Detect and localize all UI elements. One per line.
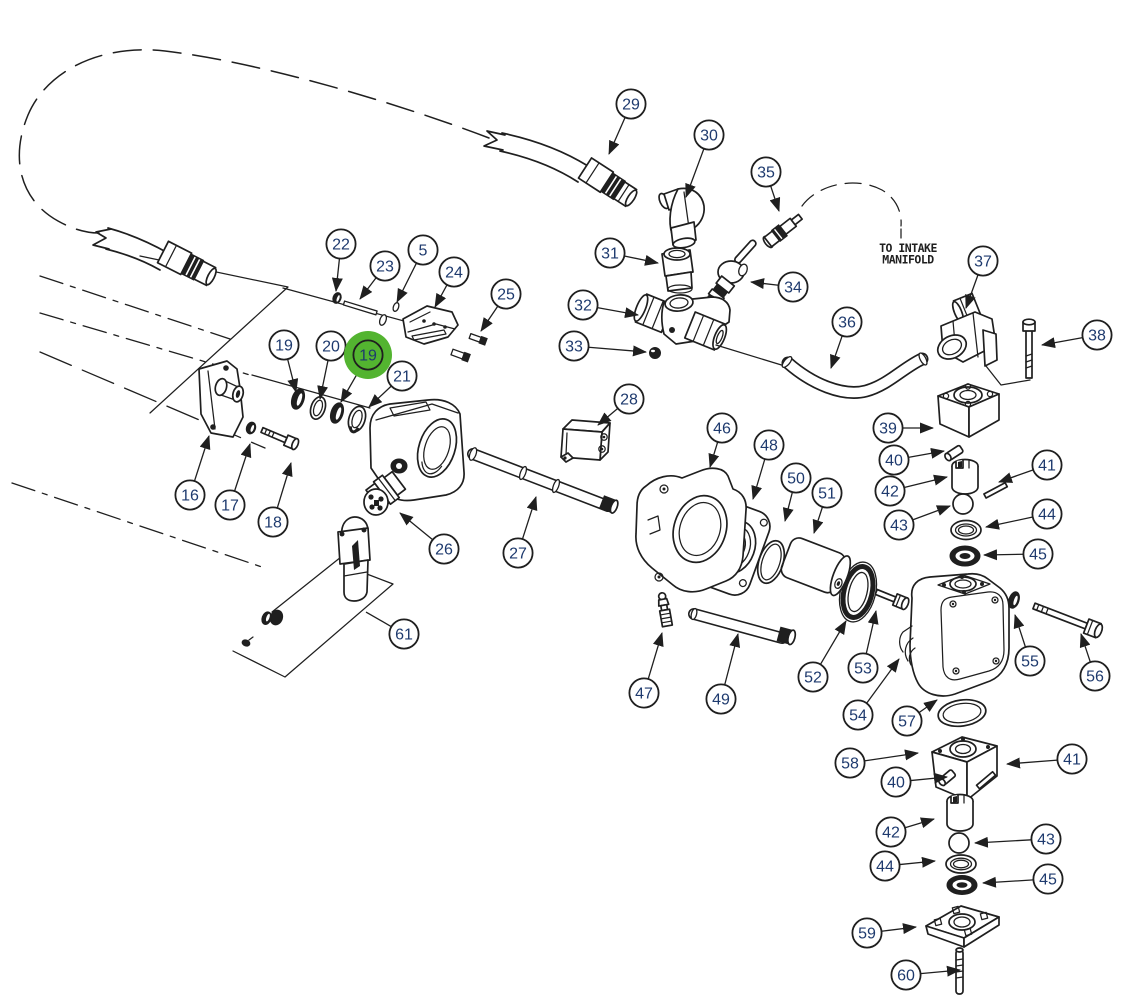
balloon-number: 31 bbox=[601, 246, 619, 263]
leader-line bbox=[908, 451, 944, 457]
part-43-ball bbox=[953, 494, 973, 514]
balloon-number: 50 bbox=[787, 471, 805, 488]
balloon-number: 34 bbox=[784, 280, 802, 297]
balloon-44[interactable]: 44 bbox=[870, 851, 935, 880]
part-17-nut bbox=[245, 421, 258, 435]
balloon-52[interactable]: 52 bbox=[798, 621, 846, 692]
balloon-34[interactable]: 34 bbox=[751, 272, 808, 301]
leader-line bbox=[1015, 615, 1025, 647]
balloon-number: 38 bbox=[1088, 328, 1106, 345]
leader-line bbox=[648, 633, 662, 679]
balloon-29[interactable]: 29 bbox=[609, 89, 646, 154]
balloon-number: 36 bbox=[838, 315, 856, 332]
balloon-46[interactable]: 46 bbox=[707, 413, 736, 467]
intake-manifold-label: TO INTAKE MANIFOLD bbox=[879, 241, 937, 267]
part-61-valve-assembly bbox=[233, 517, 393, 677]
balloon-number: 48 bbox=[760, 438, 778, 455]
leader-line bbox=[771, 186, 779, 211]
balloon-number: 42 bbox=[881, 484, 899, 501]
balloon-number: 49 bbox=[712, 692, 730, 709]
balloon-40[interactable]: 40 bbox=[879, 445, 944, 474]
leader-line bbox=[597, 308, 638, 315]
part-46-mounting-flange bbox=[636, 468, 746, 592]
balloon-24[interactable]: 24 bbox=[435, 257, 469, 307]
parts-diagram-canvas: TO INTAKE MANIFOLD bbox=[0, 0, 1147, 1003]
balloon-number: 59 bbox=[858, 926, 876, 943]
balloon-number: 43 bbox=[1037, 832, 1055, 849]
leader-line bbox=[866, 611, 876, 654]
part-59-cover-plate bbox=[926, 906, 999, 947]
balloon-number: 60 bbox=[897, 968, 915, 985]
leader-line bbox=[366, 612, 391, 627]
part-19-seal-2 bbox=[328, 401, 346, 425]
part-47-grease-fitting bbox=[657, 592, 673, 627]
part-26-gearbox bbox=[364, 400, 464, 515]
leader-line bbox=[710, 442, 718, 467]
balloon-22[interactable]: 22 bbox=[326, 229, 355, 291]
balloon-number: 30 bbox=[700, 128, 718, 145]
balloon-25[interactable]: 25 bbox=[481, 279, 521, 331]
part-39-flange bbox=[938, 384, 999, 437]
balloon-32[interactable]: 32 bbox=[568, 290, 638, 319]
balloon-31[interactable]: 31 bbox=[595, 238, 658, 267]
leader-line bbox=[194, 436, 209, 481]
balloon-number: 28 bbox=[620, 392, 638, 409]
balloon-19[interactable]: 19 bbox=[269, 330, 298, 392]
leader-line bbox=[905, 819, 934, 828]
leader-line bbox=[1042, 338, 1083, 345]
balloon-45[interactable]: 45 bbox=[983, 864, 1063, 893]
leader-line bbox=[235, 444, 250, 491]
leader-line bbox=[919, 700, 937, 713]
balloon-number: 5 bbox=[419, 243, 428, 260]
part-49-shaft bbox=[690, 608, 797, 645]
leader-line bbox=[589, 347, 646, 352]
balloon-number: 42 bbox=[882, 825, 900, 842]
balloon-number: 37 bbox=[974, 254, 992, 271]
part-30-elbow-fitting bbox=[657, 188, 704, 249]
balloon-49[interactable]: 49 bbox=[706, 634, 738, 714]
balloon-number: 45 bbox=[1039, 872, 1057, 889]
part-21-seal bbox=[345, 404, 368, 434]
balloon-36[interactable]: 36 bbox=[831, 307, 862, 368]
balloon-number: 23 bbox=[376, 259, 394, 276]
balloon-number: 41 bbox=[1038, 458, 1056, 475]
leader-line bbox=[831, 336, 842, 368]
balloon-41[interactable]: 41 bbox=[999, 450, 1062, 482]
balloon-number: 19 bbox=[359, 348, 377, 365]
part-42-bushing bbox=[952, 460, 978, 495]
balloon-number: 16 bbox=[181, 488, 199, 505]
balloon-number: 56 bbox=[1086, 669, 1104, 686]
part-57-o-ring bbox=[936, 697, 987, 729]
balloon-number: 27 bbox=[509, 546, 527, 563]
balloon-number: 19 bbox=[275, 338, 293, 355]
balloon-5[interactable]: 5 bbox=[397, 235, 438, 302]
balloon-number: 55 bbox=[1021, 654, 1039, 671]
balloon-number: 44 bbox=[876, 859, 894, 876]
balloon-number: 41 bbox=[1063, 752, 1081, 769]
balloon-59[interactable]: 59 bbox=[852, 918, 916, 947]
balloon-18[interactable]: 18 bbox=[258, 463, 291, 537]
balloon-number: 45 bbox=[1029, 547, 1047, 564]
leader-line bbox=[983, 880, 1033, 883]
balloon-number: 52 bbox=[804, 670, 822, 687]
balloon-17[interactable]: 17 bbox=[215, 444, 250, 520]
leader-line bbox=[900, 861, 935, 865]
leader-line bbox=[921, 970, 960, 974]
balloon-number: 17 bbox=[221, 498, 239, 515]
balloon-number: 46 bbox=[713, 421, 731, 438]
part-37-elbow-fitting bbox=[934, 293, 997, 366]
balloon-19[interactable]: 19 bbox=[341, 331, 392, 402]
leader-line bbox=[1007, 760, 1057, 764]
leader-line bbox=[1081, 634, 1090, 662]
part-24-bracket bbox=[403, 306, 458, 344]
balloon-41[interactable]: 41 bbox=[1007, 744, 1087, 773]
balloon-number: 58 bbox=[841, 756, 859, 773]
leader-line bbox=[753, 459, 765, 499]
balloon-61[interactable]: 61 bbox=[366, 612, 419, 649]
leader-line bbox=[984, 554, 1023, 555]
leader-line bbox=[881, 927, 916, 931]
balloon-number: 51 bbox=[818, 486, 836, 503]
balloon-27[interactable]: 27 bbox=[503, 497, 536, 568]
balloon-35[interactable]: 35 bbox=[751, 157, 780, 211]
balloon-60[interactable]: 60 bbox=[891, 960, 960, 989]
part-44-seat bbox=[951, 521, 981, 540]
balloon-48[interactable]: 48 bbox=[753, 430, 784, 499]
balloon-number: 25 bbox=[497, 287, 515, 304]
balloon-number: 20 bbox=[322, 339, 340, 356]
balloon-30[interactable]: 30 bbox=[686, 120, 724, 197]
balloon-42[interactable]: 42 bbox=[875, 476, 947, 505]
balloon-23[interactable]: 23 bbox=[360, 251, 400, 299]
balloon-number: 43 bbox=[890, 518, 908, 535]
leader-line bbox=[277, 463, 291, 508]
part-19-seal bbox=[289, 387, 307, 411]
balloon-number: 26 bbox=[435, 542, 453, 559]
leader-line bbox=[522, 497, 536, 539]
part-33-plug bbox=[650, 348, 661, 359]
leader-line bbox=[725, 634, 738, 685]
balloon-26[interactable]: 26 bbox=[400, 513, 459, 564]
balloon-number: 35 bbox=[757, 165, 775, 182]
leader-line bbox=[975, 840, 1031, 843]
part-45-seal-2 bbox=[947, 876, 977, 895]
hose-end-lower bbox=[93, 228, 219, 289]
leader-line bbox=[686, 149, 704, 197]
part-36-hose bbox=[781, 352, 929, 393]
part-20-o-ring bbox=[308, 395, 328, 421]
part-43-ball-2 bbox=[949, 833, 969, 853]
part-41-pin bbox=[984, 483, 1007, 498]
leader-line bbox=[751, 282, 779, 285]
leader-line bbox=[913, 506, 950, 520]
part-18-bolt bbox=[260, 425, 300, 451]
balloon-number: 22 bbox=[332, 237, 350, 254]
part-25-screw bbox=[451, 333, 488, 362]
balloon-number: 54 bbox=[849, 708, 867, 725]
balloon-28[interactable]: 28 bbox=[598, 384, 644, 425]
part-5-clip bbox=[378, 302, 400, 326]
balloon-number: 18 bbox=[264, 515, 282, 532]
part-35-fitting bbox=[761, 211, 804, 249]
balloon-number: 53 bbox=[854, 661, 872, 678]
part-56-bolt bbox=[1031, 599, 1104, 639]
balloon-number: 61 bbox=[395, 627, 413, 644]
balloon-number: 40 bbox=[885, 453, 903, 470]
balloon-51[interactable]: 51 bbox=[812, 478, 841, 533]
balloon-number: 33 bbox=[565, 339, 583, 356]
leader-line bbox=[864, 753, 918, 761]
balloon-57[interactable]: 57 bbox=[892, 700, 937, 736]
balloon-number: 40 bbox=[887, 775, 905, 792]
leader-line bbox=[999, 470, 1033, 482]
balloon-44[interactable]: 44 bbox=[986, 499, 1062, 528]
leader-line bbox=[986, 517, 1033, 527]
part-58-flange bbox=[932, 737, 997, 800]
leader-line bbox=[820, 621, 846, 664]
intake-hose-phantom bbox=[802, 183, 901, 238]
part-60-stud bbox=[956, 948, 963, 994]
balloon-39[interactable]: 39 bbox=[873, 413, 933, 442]
balloon-47[interactable]: 47 bbox=[629, 633, 662, 708]
part-22-pin bbox=[331, 291, 342, 304]
part-23-rod bbox=[343, 301, 377, 315]
balloon-number: 24 bbox=[445, 265, 463, 282]
part-28-coupling bbox=[561, 420, 610, 462]
part-16-bracket bbox=[199, 361, 245, 437]
balloon-38[interactable]: 38 bbox=[1042, 320, 1112, 349]
part-29-discharge-hose bbox=[484, 131, 640, 210]
balloon-number: 57 bbox=[898, 714, 916, 731]
intake-manifold-line2: MANIFOLD bbox=[882, 253, 934, 267]
part-31-adapter bbox=[662, 248, 693, 293]
leader-line bbox=[288, 359, 296, 392]
balloon-20[interactable]: 20 bbox=[316, 331, 345, 399]
balloon-50[interactable]: 50 bbox=[781, 463, 810, 521]
balloon-43[interactable]: 43 bbox=[975, 824, 1061, 853]
balloon-55[interactable]: 55 bbox=[1015, 615, 1045, 676]
balloon-43[interactable]: 43 bbox=[884, 506, 950, 540]
part-44-seat-2 bbox=[946, 855, 976, 873]
balloon-number: 32 bbox=[574, 298, 592, 315]
balloon-16[interactable]: 16 bbox=[175, 436, 209, 510]
balloon-number: 21 bbox=[393, 369, 411, 386]
leader-line bbox=[320, 360, 328, 399]
part-42-bushing-2 bbox=[947, 795, 973, 832]
balloon-33[interactable]: 33 bbox=[559, 331, 646, 360]
balloon-number: 47 bbox=[635, 686, 653, 703]
leader-line bbox=[435, 285, 447, 307]
leader-line bbox=[481, 306, 498, 331]
leader-line bbox=[336, 259, 339, 291]
part-45-seal bbox=[950, 546, 980, 566]
leader-line bbox=[785, 492, 792, 521]
balloon-number: 44 bbox=[1038, 507, 1056, 524]
leader-line bbox=[609, 117, 625, 154]
leader-line bbox=[904, 477, 947, 488]
leader-line bbox=[360, 278, 376, 299]
balloon-number: 39 bbox=[879, 421, 897, 438]
balloon-number: 29 bbox=[622, 97, 640, 114]
leader-line bbox=[624, 256, 658, 263]
part-54-pump-body bbox=[900, 574, 1009, 696]
leader-line bbox=[814, 507, 822, 533]
balloon-56[interactable]: 56 bbox=[1080, 634, 1109, 691]
phantom-hose-loop bbox=[19, 50, 489, 233]
leader-line bbox=[400, 513, 433, 540]
balloon-45[interactable]: 45 bbox=[984, 539, 1053, 568]
balloon-42[interactable]: 42 bbox=[876, 817, 934, 846]
